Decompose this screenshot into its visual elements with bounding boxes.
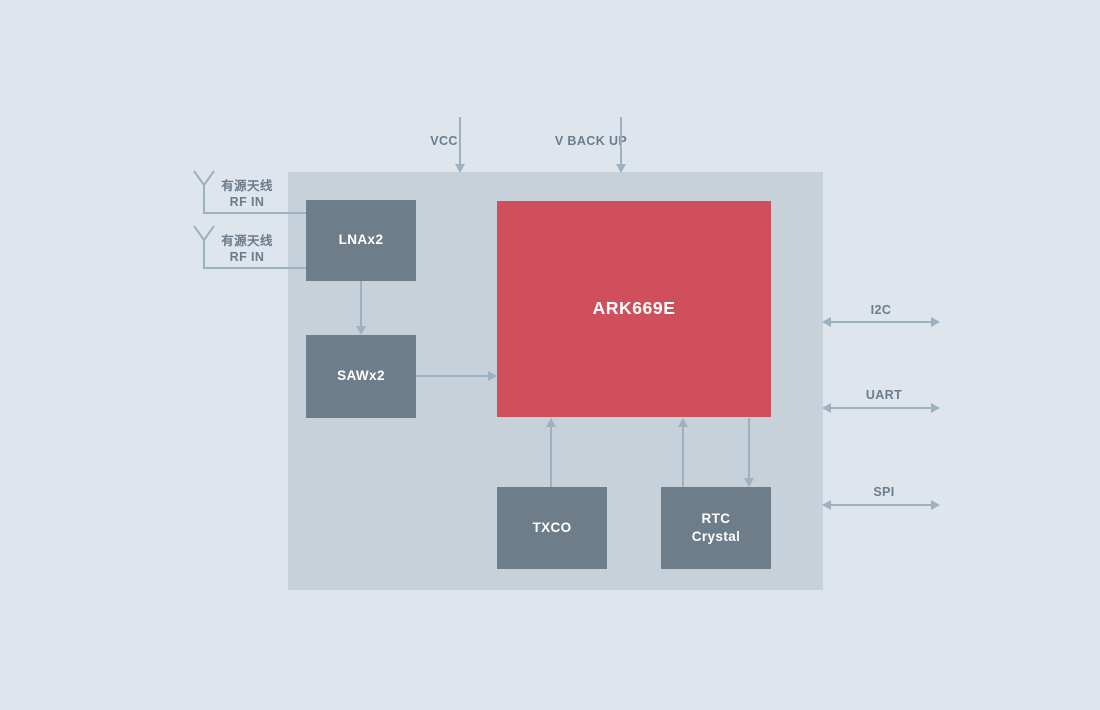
lna-to-saw-line <box>360 281 362 327</box>
rtc-to-ark-arrowhead-icon <box>678 418 688 427</box>
ark-to-rtc-line <box>748 418 750 479</box>
vcc-label: VCC <box>414 133 474 149</box>
antenna-label: 有源天线 RF IN <box>209 233 285 265</box>
ark-to-rtc-arrowhead-icon <box>744 478 754 487</box>
block-ark669e: ARK669E <box>497 201 771 417</box>
uart-label: UART <box>846 387 922 403</box>
antenna-label: 有源天线 RF IN <box>209 178 285 210</box>
block-lnax2: LNAx2 <box>306 200 416 281</box>
spi-left-arrowhead-icon <box>822 500 831 510</box>
spi-right-arrowhead-icon <box>931 500 940 510</box>
vcc-arrow-line <box>459 117 461 165</box>
i2c-label: I2C <box>846 302 916 318</box>
block-txco: TXCO <box>497 487 607 569</box>
txco-to-ark-line <box>550 426 552 487</box>
uart-right-arrowhead-icon <box>931 403 940 413</box>
antenna-name-cn: 有源天线 <box>209 233 285 249</box>
vbackup-arrowhead-icon <box>616 164 626 173</box>
block-sawx2: SAWx2 <box>306 335 416 418</box>
spi-bidir-line <box>830 504 932 506</box>
uart-bidir-line <box>830 407 932 409</box>
saw-to-ark-line <box>416 375 489 377</box>
i2c-right-arrowhead-icon <box>931 317 940 327</box>
rtc-to-ark-line <box>682 426 684 487</box>
i2c-left-arrowhead-icon <box>822 317 831 327</box>
txco-to-ark-arrowhead-icon <box>546 418 556 427</box>
spi-label: SPI <box>846 484 922 500</box>
vcc-arrowhead-icon <box>455 164 465 173</box>
rf-in-connector-line <box>203 212 306 214</box>
rf-in-connector-line <box>203 267 306 269</box>
i2c-bidir-line <box>830 321 932 323</box>
antenna-rf-in: RF IN <box>209 194 285 210</box>
block-rtc-crystal: RTC Crystal <box>661 487 771 569</box>
saw-to-ark-arrowhead-icon <box>488 371 497 381</box>
lna-to-saw-arrowhead-icon <box>356 326 366 335</box>
antenna-rf-in: RF IN <box>209 249 285 265</box>
uart-left-arrowhead-icon <box>822 403 831 413</box>
antenna-name-cn: 有源天线 <box>209 178 285 194</box>
vbackup-label: V BACK UP <box>546 133 636 149</box>
block-diagram: VCC V BACK UP 有源天线 RF IN 有源天线 RF IN LNAx… <box>0 0 1100 710</box>
vbackup-arrow-line <box>620 117 622 165</box>
